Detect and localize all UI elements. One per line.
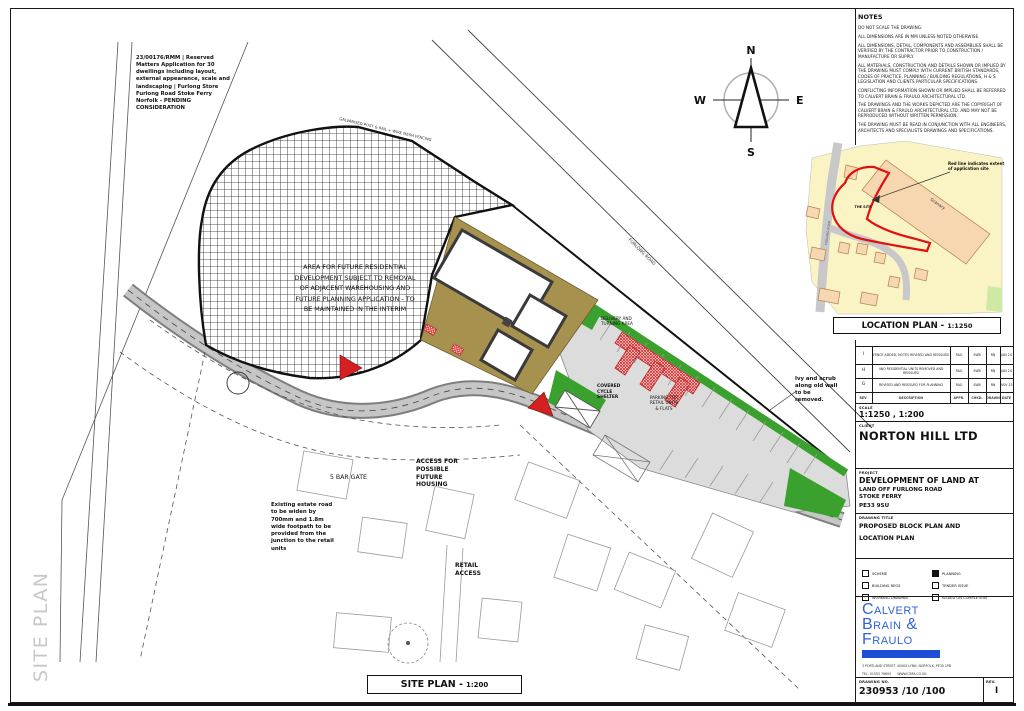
retail-access-note: RETAIL ACCESS [455, 562, 499, 578]
rev-date: JAN 24 [1000, 346, 1013, 364]
project-label: PROJECT [859, 471, 878, 475]
furlong-road-label: FURLONG ROAD [627, 237, 657, 267]
rev-description: 4No RESIDENTIAL UNITS REMOVED AND REISSU… [873, 364, 949, 378]
ivy-note: Ivy and scrub along old wall to be remov… [795, 376, 841, 404]
site-plan-title-box: SITE PLAN - 1:200 [367, 675, 522, 694]
rev-description: FENCE ADDED, NOTES REVISED AND REISSUED [873, 346, 949, 364]
rev-label: REV. [986, 680, 996, 684]
parking-note: PARKING FOR RETAIL UNITS & FLATS [648, 395, 680, 411]
planning-application-note: 23/00176/RMM | Reserved Matters Applicat… [136, 55, 234, 112]
gate-note: 5 BAR GATE [330, 474, 367, 481]
red-line-annotation: Red line indicates extent of application… [948, 161, 1006, 171]
drawing-sheet: FURLONG ROAD [0, 0, 1024, 711]
notes-title: NOTES [858, 13, 1010, 21]
future-area-note: AREA FOR FUTURE RESIDENTIAL DEVELOPMENT … [293, 262, 417, 315]
rev-header: DESCRIPTION [873, 392, 949, 403]
compass-n: N [746, 44, 755, 57]
drawing-title-label: DRAWING TITLE [859, 516, 893, 520]
rev-letter: G [855, 378, 872, 392]
rev-header: REV. [855, 392, 872, 403]
rev-date: JAN 24 [1000, 364, 1013, 378]
site-plan-scale: 1:200 [466, 681, 488, 689]
logo-line-3: Fraulo [862, 632, 951, 647]
rev-chkd: SWB [968, 364, 986, 378]
site-plan-title: SITE PLAN - [401, 679, 463, 690]
compass-s: S [747, 146, 755, 159]
notes-panel: NOTES DO NOT SCALE THE DRAWING. ALL DIME… [858, 13, 1010, 137]
rev-header: APPR. [950, 392, 968, 403]
note-line: ALL DIMENSIONS ARE IN mm UNLESS NOTED OT… [858, 34, 1010, 39]
rev-drawn: RN [986, 378, 1000, 392]
compass-w: W [694, 94, 706, 107]
rev-description: REVISED AND REISSUED FOR PLANNING [873, 378, 949, 392]
firm-address: 3 PORTLAND STREET, KINGS LYNN, NORFOLK, … [862, 664, 951, 668]
note-line: THE DRAWINGS AND THE WORKS DEPICTED ARE … [858, 102, 1010, 118]
rev-header: CHKD. [968, 392, 986, 403]
note-line: THE DRAWING MUST BE READ IN CONJUNCTION … [858, 122, 1010, 133]
cycle-shelter-note: COVERED CYCLE SHELTER [597, 384, 633, 401]
project-line2: LAND OFF FURLONG ROAD [859, 487, 942, 493]
rev-letter: I [855, 346, 872, 364]
logo-line-2: Brain & [862, 617, 951, 632]
firm-contact: TEL: 01553 76600 WWW.CBFA.CO.UK [862, 672, 951, 676]
note-line: CONFLICTING INFORMATION SHOWN OR IMPLIED… [858, 88, 1010, 99]
project-line3: STOKE FERRY [859, 494, 902, 500]
drawing-title-value: PROPOSED BLOCK PLAN AND LOCATION PLAN [859, 521, 969, 545]
location-plan-title-box: LOCATION PLAN - 1:1250 [833, 317, 1001, 334]
rev-date: NOV 23 [1000, 378, 1013, 392]
drawing-no-value: 230953 /10 /100 [859, 686, 945, 697]
rev-header: DRAWN [986, 392, 1000, 403]
location-plan-title: LOCATION PLAN - [862, 321, 945, 331]
note-line: ALL DIMENSIONS, DETAIL, COMPONENTS AND A… [858, 43, 1010, 59]
rev-chkd: SWB [968, 346, 986, 364]
firm-logo: Calvert Brain & Fraulo 3 PORTLAND STREET… [862, 602, 951, 676]
access-note: ACCESS FOR POSSIBLE FUTURE HOUSING [416, 458, 472, 489]
scale-value: 1:1250 , 1:200 [859, 410, 924, 419]
the-site-label: THE SITE [855, 205, 873, 209]
sheet-side-label: SITE PLAN [30, 571, 52, 682]
rev-appr: RAG [950, 346, 968, 364]
drawing-no-label: DRAWING NO. [859, 680, 889, 684]
rev-letter: H [855, 364, 872, 378]
estate-road-note: Existing estate road to be widen by 700m… [271, 502, 337, 553]
rev-appr: RAG [950, 378, 968, 392]
rev-drawn: RN [986, 346, 1000, 364]
logo-bar [862, 650, 940, 658]
note-line: DO NOT SCALE THE DRAWING. [858, 25, 1010, 30]
logo-line-1: Calvert [862, 602, 951, 617]
rev-header: DATE [1000, 392, 1013, 403]
project-line1: DEVELOPMENT OF LAND AT [859, 476, 979, 485]
location-plan-scale: 1:1250 [947, 322, 972, 330]
location-green [986, 286, 1002, 312]
client-value: NORTON HILL LTD [859, 429, 978, 443]
note-line: ALL MATERIALS, CONSTRUCTION AND DETAILS … [858, 63, 1010, 85]
north-arrow: N S W E [694, 44, 804, 159]
delivery-note: DELIVERY AND TURNING AREA [601, 316, 633, 327]
rev-appr: RAG [950, 364, 968, 378]
ivy-leader [770, 392, 795, 410]
client-label: CLIENT [859, 424, 874, 428]
rev-value: I [995, 686, 998, 696]
project-line4: PE33 9SU [859, 503, 889, 509]
rev-chkd: SWB [968, 378, 986, 392]
rev-drawn: RN [986, 364, 1000, 378]
compass-e: E [796, 94, 804, 107]
